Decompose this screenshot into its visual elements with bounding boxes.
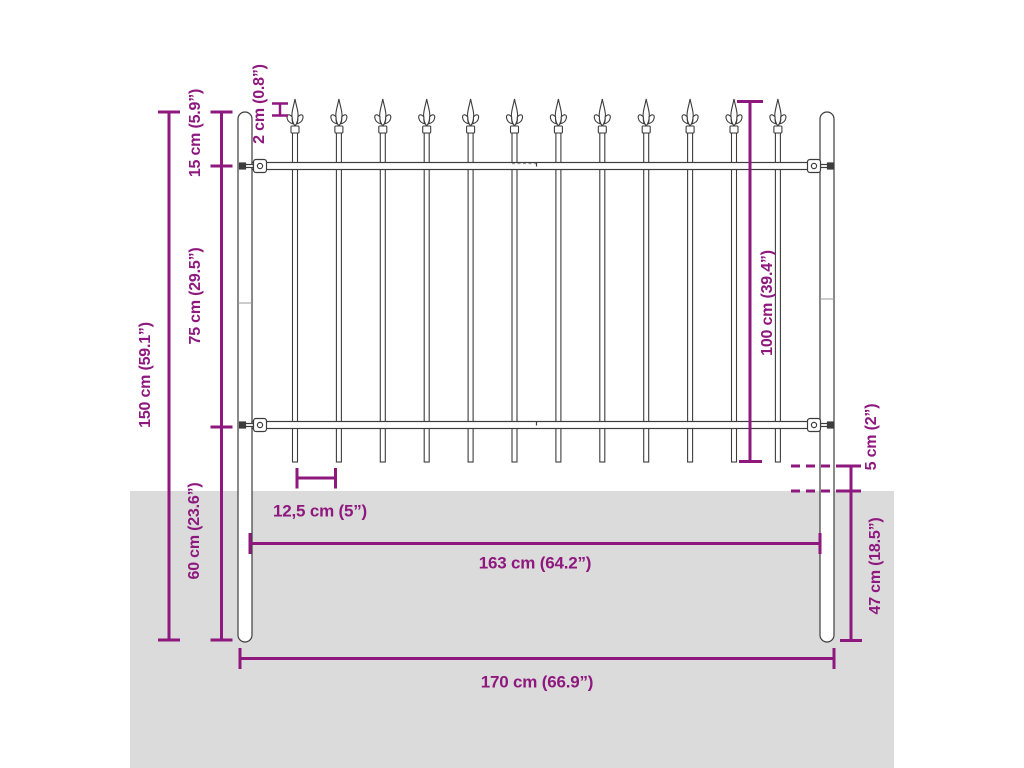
fence-picket <box>638 99 654 462</box>
dim-panel-width-line <box>250 533 820 554</box>
picket-bar <box>600 133 605 462</box>
picket-bar <box>512 133 517 462</box>
dim-spear-tip-line <box>272 104 288 116</box>
diagram-canvas: 150 cm (59.1”) 15 cm (5.9”) 75 cm (29.5”… <box>0 0 1024 768</box>
dim-label-spear-tip: 2 cm (0.8”) <box>252 64 268 144</box>
picket-bar <box>293 133 298 462</box>
fence-picket <box>506 99 522 462</box>
fence-picket <box>594 99 610 462</box>
spear-collar <box>335 126 343 133</box>
picket-bar <box>336 133 341 462</box>
dim-label-total-width: 170 cm (66.9”) <box>481 674 594 691</box>
fence-pickets <box>287 99 786 462</box>
dim-label-ground-clearance: 5 cm (2”) <box>864 404 880 471</box>
bracket-screw <box>811 163 816 168</box>
spear-collar <box>774 126 782 133</box>
fence-picket <box>463 99 479 462</box>
dim-buried-depth-line <box>840 491 862 641</box>
dim-sections-line <box>211 112 233 640</box>
dim-label-picket-spacing: 12,5 cm (5”) <box>273 503 367 520</box>
dim-label-panel-width: 163 cm (64.2”) <box>479 555 592 572</box>
picket-bar <box>424 133 429 462</box>
spear-collar <box>730 126 738 133</box>
dim-label-bottom-section: 60 cm (23.6”) <box>187 482 203 579</box>
spear-collar <box>423 126 431 133</box>
picket-bar <box>468 133 473 462</box>
dim-picket-spacing-line <box>297 468 336 489</box>
fence-picket <box>726 99 742 462</box>
dim-total-height-line <box>158 112 180 640</box>
picket-bar <box>644 133 649 462</box>
picket-bar <box>775 133 780 462</box>
spear-collar <box>554 126 562 133</box>
bracket-screw <box>257 422 262 427</box>
bracket-screw <box>257 163 262 168</box>
bracket-bolt <box>828 422 834 428</box>
picket-bar <box>380 133 385 462</box>
right-post <box>820 112 834 642</box>
fence-picket <box>682 99 698 462</box>
dim-label-buried-depth: 47 cm (18.5”) <box>868 517 884 614</box>
left-post <box>238 112 252 642</box>
fence-picket <box>375 99 391 462</box>
spear-collar <box>467 126 475 133</box>
dim-label-total-height: 150 cm (59.1”) <box>138 322 154 428</box>
bracket-bolt <box>828 163 834 169</box>
dimension-lines <box>158 102 862 670</box>
bracket-screw <box>811 422 816 427</box>
spear-collar <box>686 126 694 133</box>
fence-picket <box>287 99 303 462</box>
dim-label-mid-section: 75 cm (29.5”) <box>188 247 204 344</box>
bracket-bolt <box>240 163 246 169</box>
fence-picket <box>331 99 347 462</box>
picket-bar <box>688 133 693 462</box>
fence-picket <box>419 99 435 462</box>
picket-bar <box>556 133 561 462</box>
spear-collar <box>598 126 606 133</box>
dim-total-width-line <box>240 648 834 669</box>
spear-collar <box>379 126 387 133</box>
dim-label-panel-height: 100 cm (39.4”) <box>760 250 776 356</box>
dim-ground-clearance-line <box>841 466 861 491</box>
spear-collar <box>511 126 519 133</box>
bracket-bolt <box>240 422 246 428</box>
spear-collar <box>642 126 650 133</box>
dim-label-top-section: 15 cm (5.9”) <box>188 89 204 177</box>
spear-collar <box>291 126 299 133</box>
picket-bar <box>732 133 737 462</box>
fence-picket <box>550 99 566 462</box>
rail-brackets <box>240 160 834 432</box>
